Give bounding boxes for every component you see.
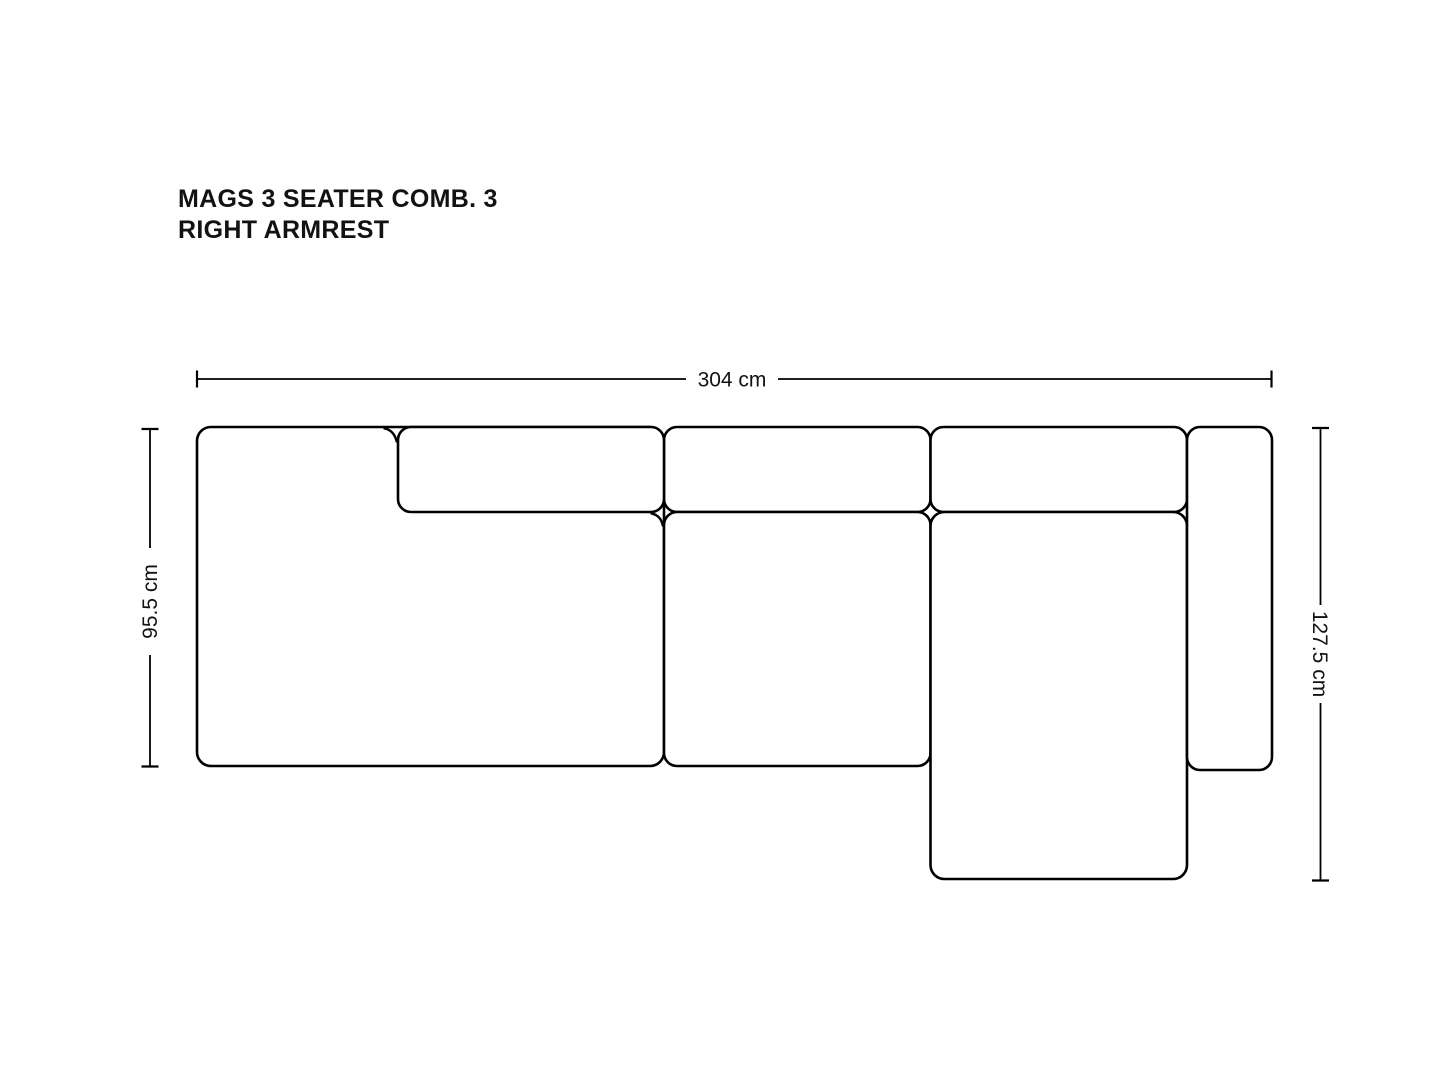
left-backrest-cushion [398,427,664,512]
sofa-diagram: 304 cm 95.5 cm 127.5 cm [0,0,1445,1087]
width-dimension-label: 304 cm [698,369,767,392]
left-height-label: 95.5 cm [139,564,162,639]
middle-seat-module [664,512,931,766]
right-height-label: 127.5 cm [1308,611,1331,697]
chaise-lounge-seat [931,512,1188,879]
page: MAGS 3 SEATER COMB. 3 RIGHT ARMREST 304 … [0,0,1445,1087]
sofa-outline [197,427,1272,879]
left-height-dimension: 95.5 cm [139,429,162,767]
width-dimension: 304 cm [197,369,1272,392]
right-armrest [1187,427,1272,770]
right-height-dimension: 127.5 cm [1308,428,1331,881]
chaise-backrest-cushion [931,427,1188,512]
middle-backrest-cushion [664,427,931,512]
